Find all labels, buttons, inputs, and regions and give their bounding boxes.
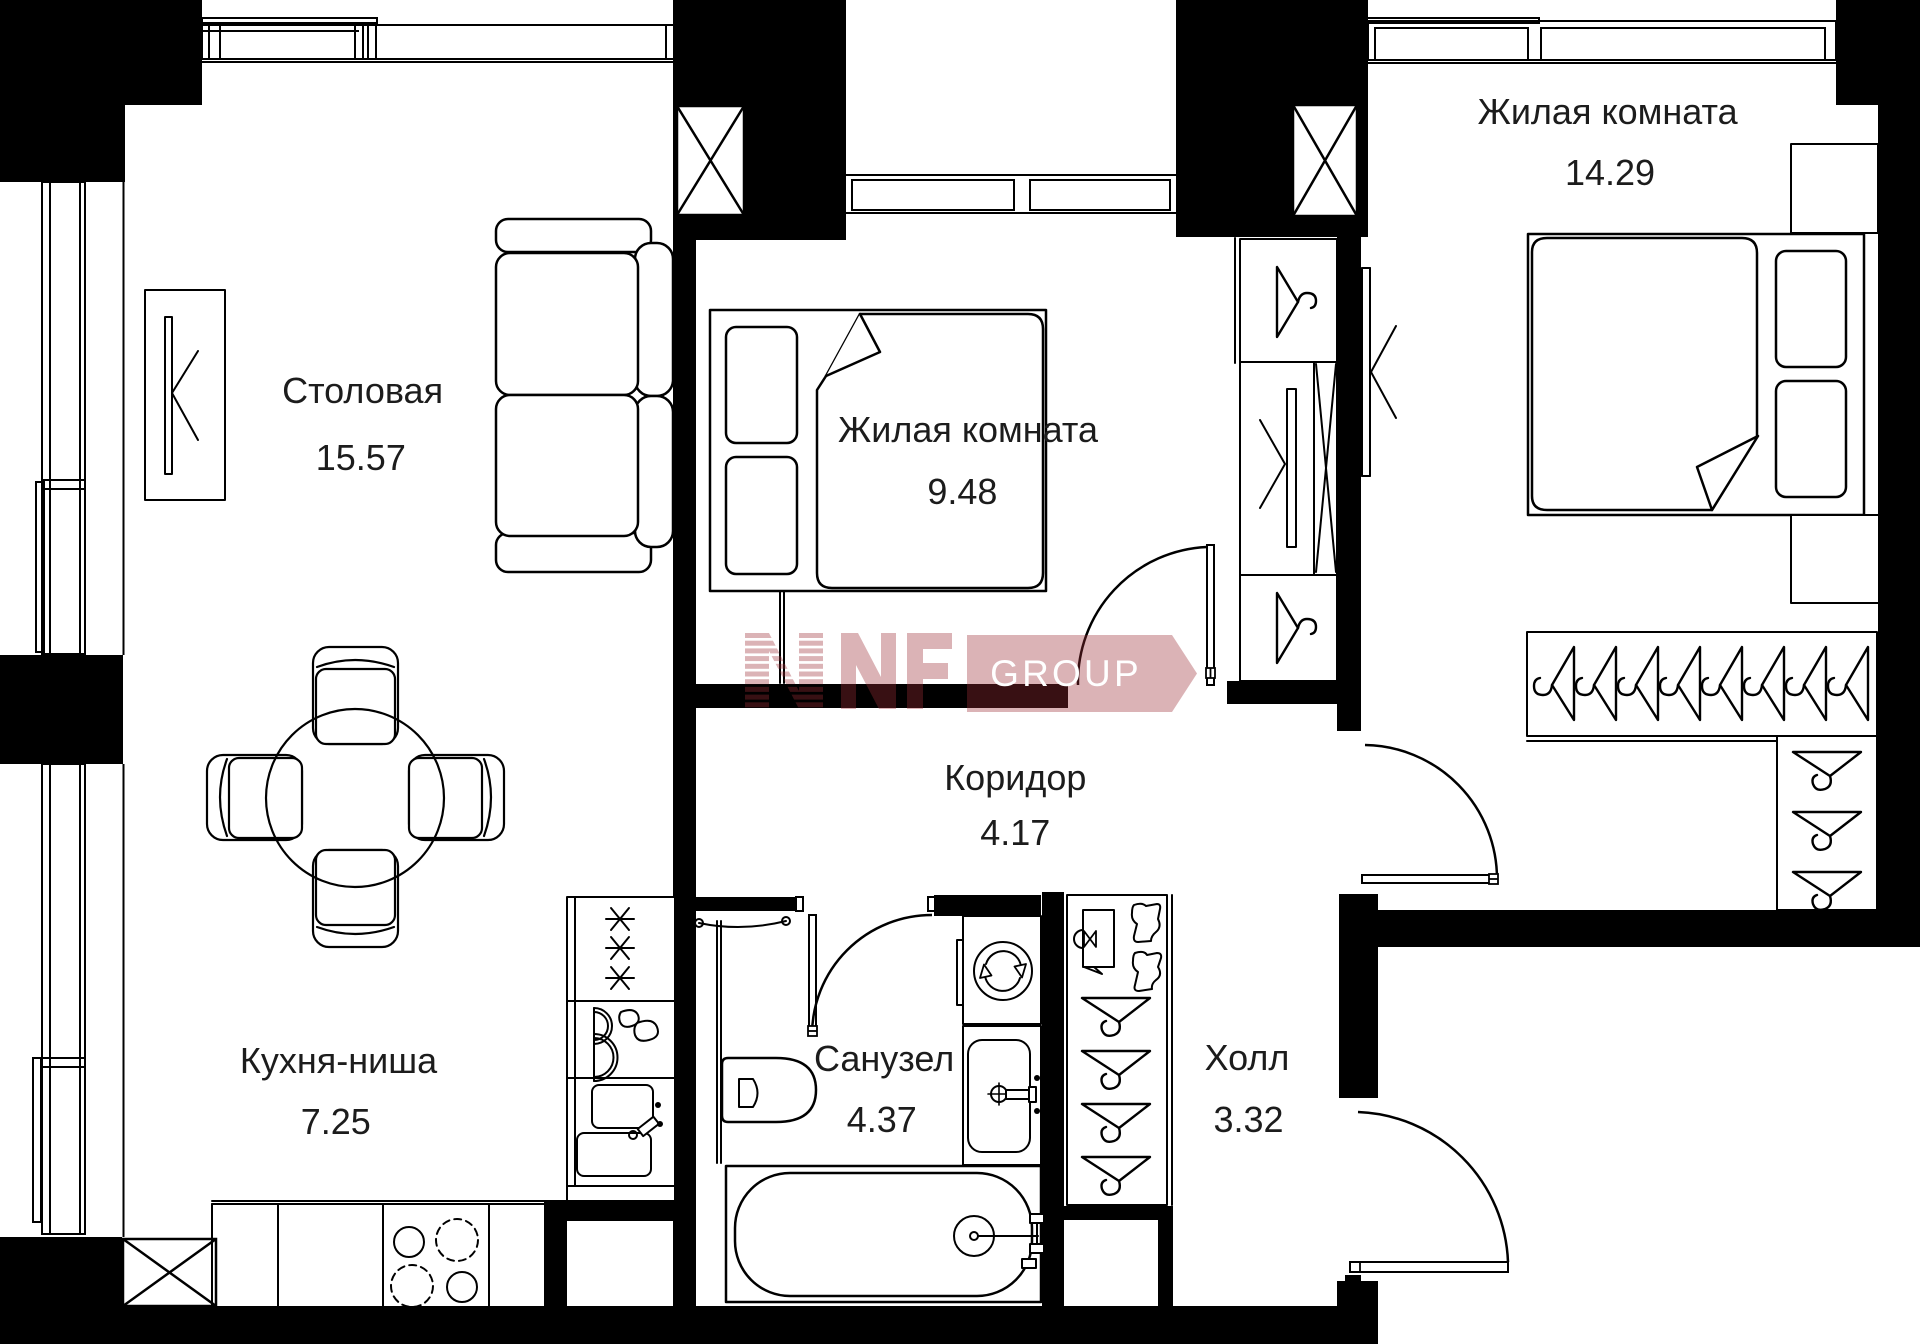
svg-text:3.32: 3.32 — [1213, 1099, 1283, 1140]
svg-text:9.48: 9.48 — [927, 471, 997, 512]
svg-text:Жилая комната: Жилая комната — [838, 409, 1099, 450]
svg-text:4.17: 4.17 — [980, 812, 1050, 853]
svg-text:Кухня-ниша: Кухня-ниша — [240, 1040, 438, 1081]
svg-text:Холл: Холл — [1205, 1037, 1290, 1078]
svg-text:GROUP: GROUP — [990, 653, 1142, 694]
svg-text:4.37: 4.37 — [847, 1099, 917, 1140]
svg-text:Столовая: Столовая — [282, 370, 443, 411]
svg-text:Санузел: Санузел — [814, 1038, 954, 1079]
svg-text:7.25: 7.25 — [301, 1101, 371, 1142]
svg-text:14.29: 14.29 — [1565, 152, 1655, 193]
svg-text:15.57: 15.57 — [316, 437, 406, 478]
svg-text:Жилая комната: Жилая комната — [1478, 91, 1739, 132]
svg-text:Коридор: Коридор — [944, 757, 1086, 798]
